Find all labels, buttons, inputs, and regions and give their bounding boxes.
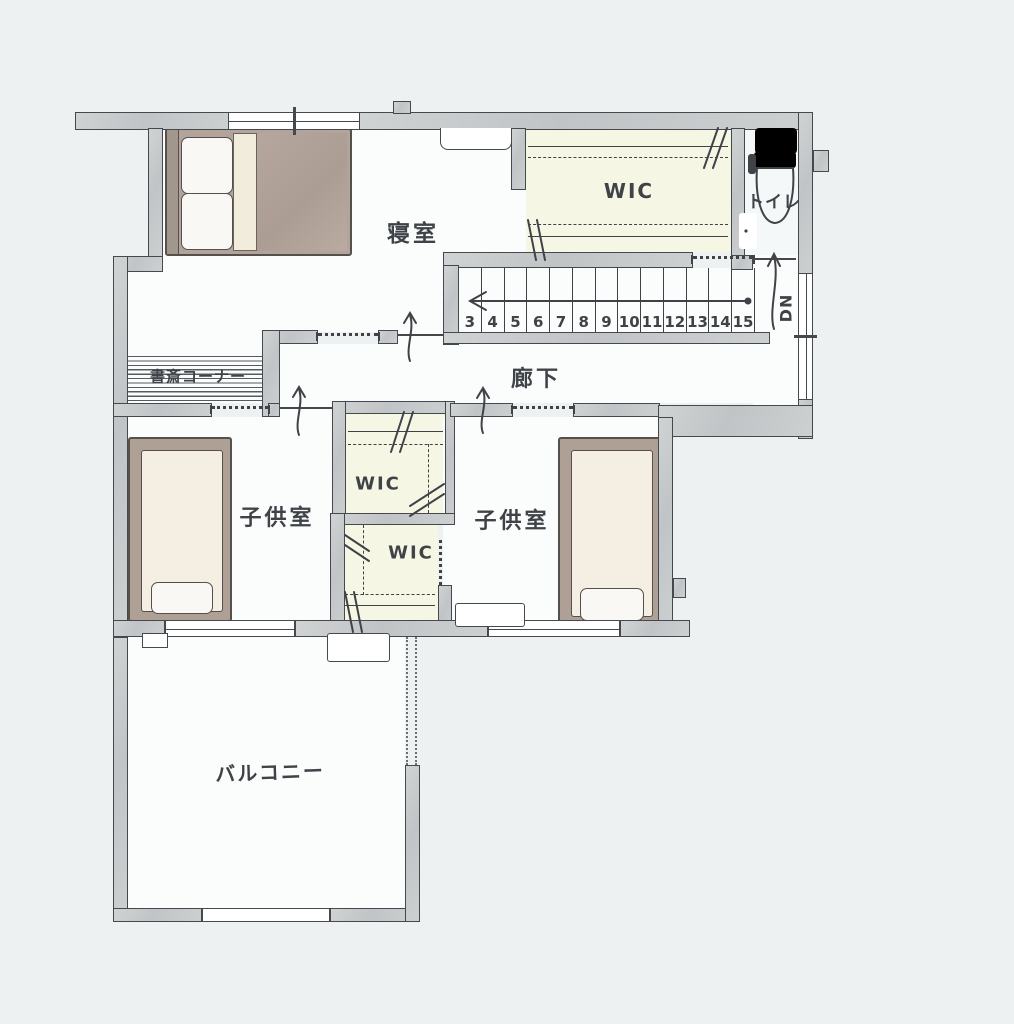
- balcony-stub: [142, 633, 168, 648]
- rod-break-mark: [518, 220, 548, 260]
- wall: [113, 256, 128, 637]
- window-mullion: [794, 335, 817, 338]
- bedroom-niche: [440, 128, 512, 150]
- door-swing-bedroom: [399, 308, 421, 364]
- study-label: 書斎コーナー: [150, 366, 246, 387]
- wall: [332, 401, 346, 525]
- sliding-door: [318, 333, 378, 336]
- toilet-label: トイレ: [747, 188, 801, 213]
- rod-break-mark: [337, 592, 367, 632]
- pillow: [151, 582, 213, 614]
- closet-rod: [528, 236, 728, 237]
- wall: [620, 620, 690, 637]
- bedroom-label: 寝室: [387, 214, 439, 248]
- sliding-door: [439, 540, 442, 585]
- kids-right-label: 子供室: [474, 503, 549, 535]
- bed-pillow: [181, 193, 233, 250]
- pillow: [580, 588, 644, 621]
- wall: [573, 403, 660, 417]
- bed-pillow: [181, 137, 233, 194]
- floor-plan: 3456789101112131415 DN 寝室 WIC トイレ 廊下 書斎コ…: [0, 0, 1014, 1024]
- sliding-door: [693, 256, 753, 259]
- wall: [148, 128, 163, 260]
- wall: [443, 252, 693, 268]
- wic-lower-label: WIC: [388, 543, 434, 564]
- window: [165, 620, 295, 637]
- door-swing-toilet: [762, 248, 786, 332]
- bed-headboard: [167, 130, 179, 254]
- balcony-label: バルコニー: [215, 755, 326, 788]
- wall-notch: [393, 101, 411, 114]
- wall: [445, 401, 455, 525]
- single-bed-right: [558, 437, 662, 627]
- sliding-door: [212, 406, 268, 409]
- wic-main-label: WIC: [604, 179, 654, 203]
- double-bed: [165, 128, 352, 256]
- toilet-basin-icon: [738, 212, 758, 250]
- bed-sheet-fold: [233, 133, 257, 251]
- balcony-open-rail: [415, 637, 417, 765]
- kids-left-label: 子供室: [239, 500, 314, 532]
- single-bed-left: [128, 437, 232, 622]
- wall-vent: [673, 578, 686, 598]
- rod-break-mark: [343, 527, 371, 565]
- wall: [378, 330, 398, 344]
- sliding-door: [513, 406, 573, 409]
- balcony-open-rail: [406, 637, 408, 765]
- kids-right-desk: [455, 603, 525, 627]
- balcony-wall: [113, 637, 128, 922]
- window-mullion: [293, 107, 296, 135]
- door-swing-kids-right: [472, 384, 494, 436]
- closet-shelf: [528, 224, 728, 225]
- wall: [113, 403, 212, 417]
- stair-direction-arrow: [462, 288, 754, 314]
- wall: [658, 417, 673, 637]
- wic-upper-label: WIC: [355, 474, 401, 495]
- rod-break-mark: [385, 412, 415, 452]
- wall: [658, 405, 813, 437]
- balcony-wall: [113, 908, 202, 922]
- wall-vent: [813, 150, 829, 172]
- stair-rail-wall: [443, 332, 770, 344]
- balcony-ac-unit: [327, 633, 390, 662]
- wall: [511, 128, 526, 190]
- bed-duvet: [257, 133, 347, 251]
- door-swing-kids-left: [288, 382, 310, 438]
- balcony-wall: [405, 765, 420, 922]
- rod-break-mark: [408, 476, 446, 516]
- balcony-rail-panel: [202, 908, 330, 922]
- rod-break-mark: [698, 128, 730, 168]
- hallway-label: 廊下: [511, 361, 561, 393]
